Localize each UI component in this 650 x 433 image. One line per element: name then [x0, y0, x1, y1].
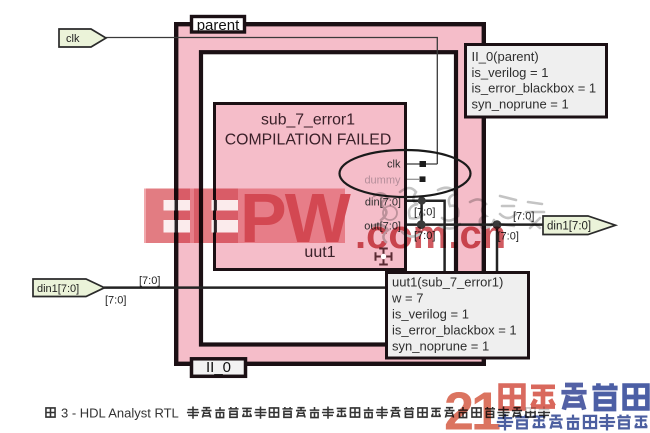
svg-text:is_error_blackbox = 1: is_error_blackbox = 1: [472, 81, 597, 96]
svg-text:[7:0]: [7:0]: [139, 275, 160, 287]
svg-text:.com.cn: .com.cn: [355, 213, 506, 257]
svg-text:21: 21: [444, 382, 500, 433]
svg-text:PW: PW: [240, 179, 351, 257]
svg-text:syn_noprune = 1: syn_noprune = 1: [392, 339, 489, 354]
svg-text:3 - HDL Analyst RTL: 3 - HDL Analyst RTL: [61, 406, 179, 421]
svg-text:clk: clk: [387, 159, 401, 171]
svg-text:COMPILATION FAILED: COMPILATION FAILED: [225, 132, 391, 149]
svg-text:uut1(sub_7_error1): uut1(sub_7_error1): [392, 275, 503, 290]
svg-text:din1[7:0]: din1[7:0]: [37, 283, 79, 295]
svg-text:syn_noprune = 1: syn_noprune = 1: [472, 96, 569, 111]
svg-text:II_0: II_0: [206, 359, 231, 376]
svg-text:parent: parent: [197, 17, 240, 34]
svg-text:dummy: dummy: [364, 174, 401, 186]
svg-text:clk: clk: [66, 33, 80, 45]
svg-text:sub_7_error1: sub_7_error1: [261, 112, 355, 129]
svg-text:[7:0]: [7:0]: [105, 295, 126, 307]
svg-text:w = 7: w = 7: [391, 291, 423, 306]
svg-text:is_verilog = 1: is_verilog = 1: [472, 65, 549, 80]
svg-text:din1[7:0]: din1[7:0]: [547, 221, 591, 233]
svg-text:is_verilog = 1: is_verilog = 1: [392, 307, 469, 322]
svg-text:II_0(parent): II_0(parent): [472, 49, 539, 64]
svg-text:is_error_blackbox = 1: is_error_blackbox = 1: [392, 323, 517, 338]
